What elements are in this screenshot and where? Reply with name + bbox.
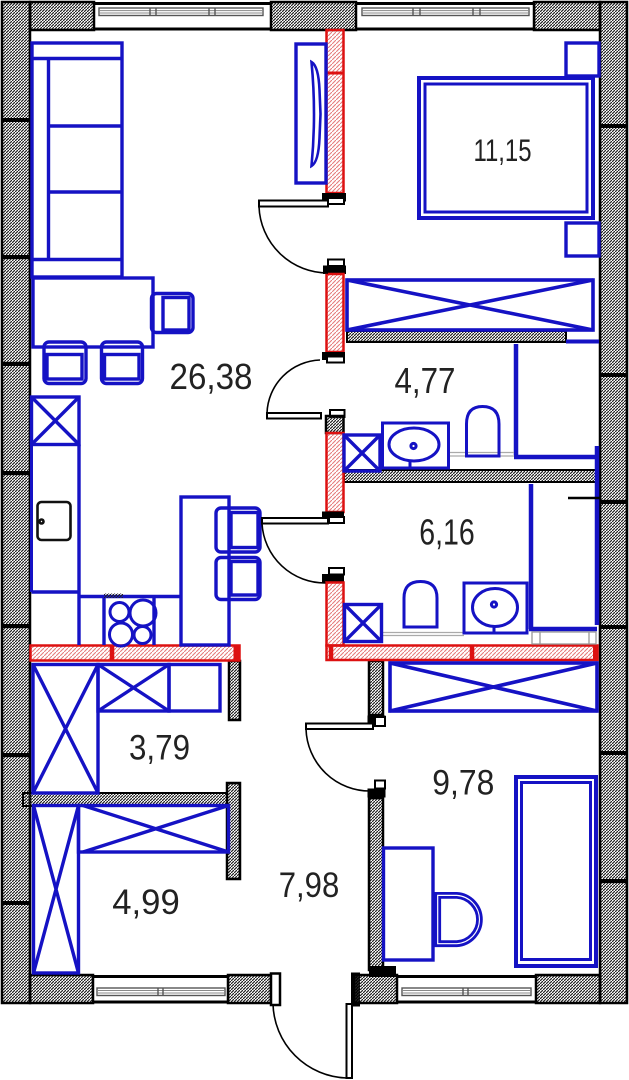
svg-text:4,77: 4,77 — [395, 360, 456, 401]
svg-text:11,15: 11,15 — [474, 132, 532, 168]
svg-text:3,79: 3,79 — [129, 729, 190, 768]
svg-text:9,78: 9,78 — [432, 763, 494, 802]
svg-text:4,99: 4,99 — [112, 883, 180, 922]
svg-text:26,38: 26,38 — [170, 356, 253, 397]
svg-text:7,98: 7,98 — [279, 866, 340, 905]
svg-text:6,16: 6,16 — [419, 512, 475, 553]
